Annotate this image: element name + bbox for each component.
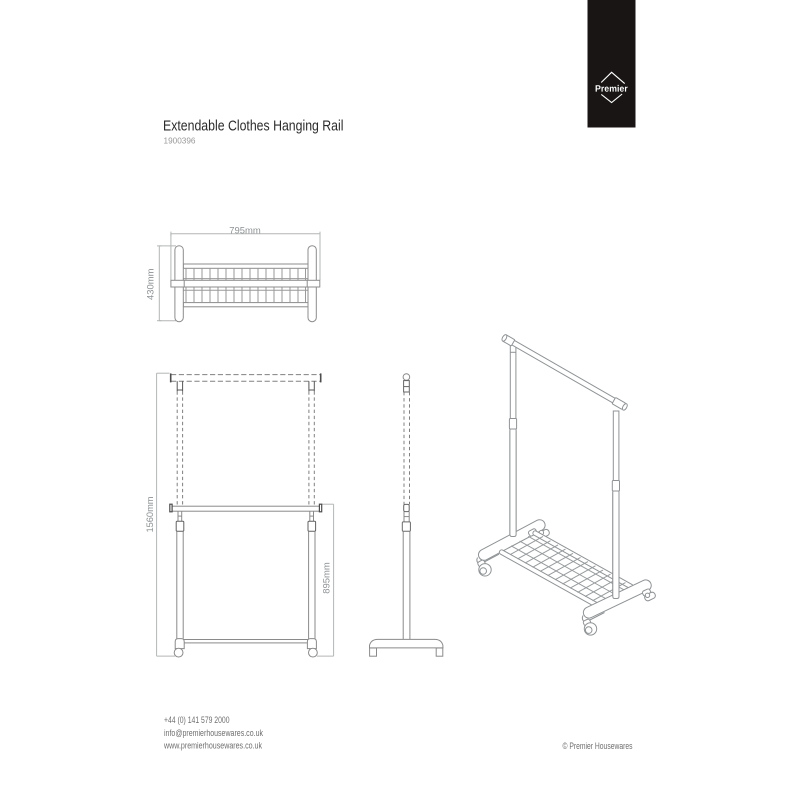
svg-text:1560mm: 1560mm	[145, 496, 156, 532]
svg-text:© Premier Housewares: © Premier Housewares	[563, 741, 633, 751]
svg-text:+44 (0) 141 579 2000: +44 (0) 141 579 2000	[164, 715, 230, 725]
svg-text:1900396: 1900396	[164, 136, 196, 146]
svg-text:info@premierhousewares.co.uk: info@premierhousewares.co.uk	[164, 728, 263, 738]
svg-text:895mm: 895mm	[321, 562, 332, 594]
svg-text:www.premierhousewares.co.uk: www.premierhousewares.co.uk	[163, 740, 262, 750]
svg-text:Extendable Clothes Hanging Rai: Extendable Clothes Hanging Rail	[163, 119, 344, 135]
svg-text:430mm: 430mm	[146, 268, 157, 300]
svg-text:795mm: 795mm	[229, 225, 261, 236]
